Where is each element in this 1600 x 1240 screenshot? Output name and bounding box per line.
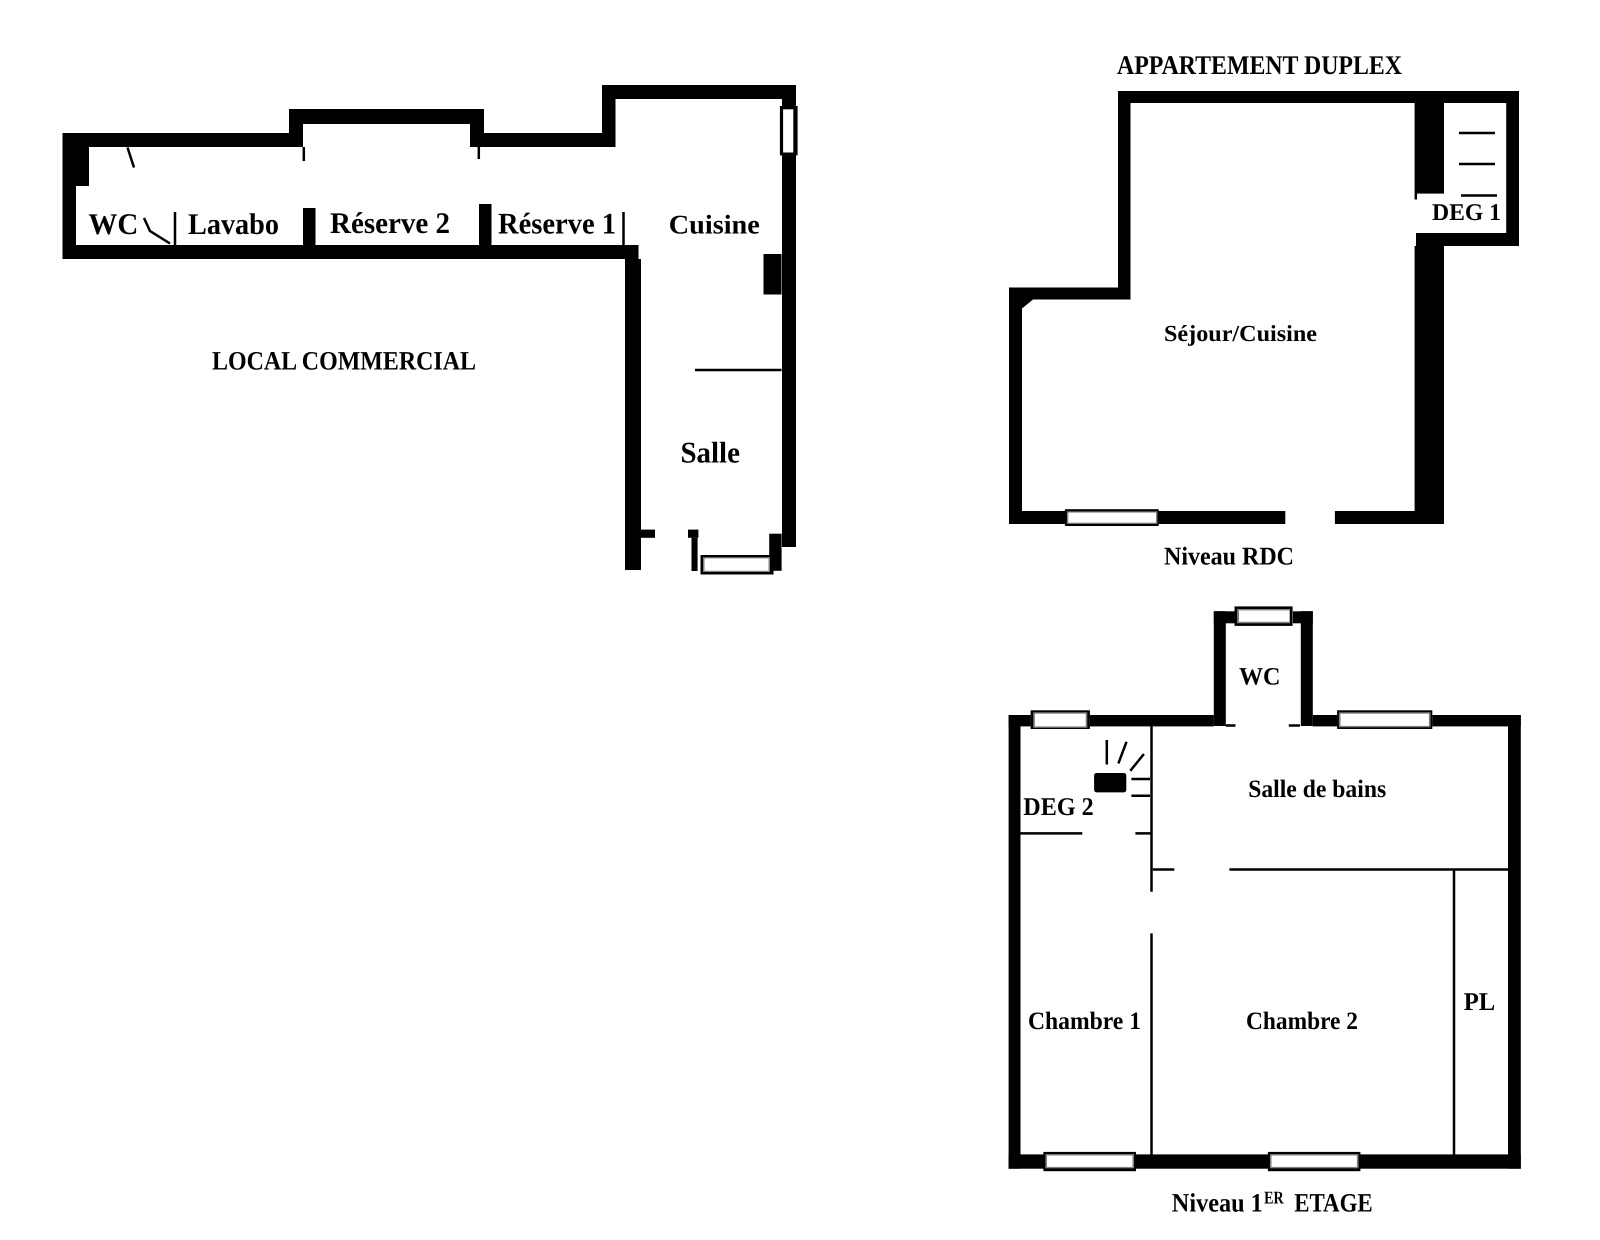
svg-text:DEG 2: DEG 2 — [1023, 792, 1093, 821]
svg-text:LOCAL COMMERCIAL: LOCAL COMMERCIAL — [212, 345, 476, 375]
svg-text:APPARTEMENT DUPLEX: APPARTEMENT DUPLEX — [1117, 50, 1402, 80]
svg-text:Séjour/Cuisine: Séjour/Cuisine — [1164, 321, 1317, 346]
svg-text:Cuisine: Cuisine — [669, 209, 760, 239]
svg-text:Salle: Salle — [680, 437, 740, 470]
svg-text:Lavabo: Lavabo — [188, 208, 279, 241]
svg-text:Chambre 1: Chambre 1 — [1028, 1008, 1141, 1035]
svg-text:Réserve 1: Réserve 1 — [498, 207, 616, 240]
svg-text:Salle de bains: Salle de bains — [1248, 776, 1386, 803]
svg-text:ER: ER — [1264, 1188, 1284, 1208]
svg-text:PL: PL — [1464, 987, 1496, 1016]
svg-text:ETAGE: ETAGE — [1294, 1187, 1373, 1217]
svg-text:WC: WC — [88, 208, 138, 241]
svg-text:Réserve 2: Réserve 2 — [330, 207, 450, 240]
svg-text:Niveau RDC: Niveau RDC — [1164, 541, 1294, 570]
svg-text:Niveau 1: Niveau 1 — [1172, 1187, 1263, 1217]
svg-text:Chambre 2: Chambre 2 — [1246, 1008, 1358, 1035]
svg-text:WC: WC — [1239, 663, 1281, 690]
svg-text:DEG 1: DEG 1 — [1432, 200, 1501, 226]
